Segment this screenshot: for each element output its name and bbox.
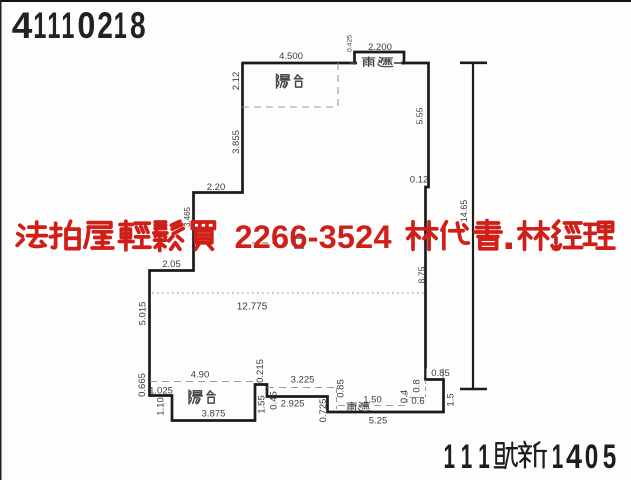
svg-text:1.5: 1.5	[446, 393, 457, 406]
svg-text:1: 1	[478, 438, 490, 476]
svg-text:2.05: 2.05	[162, 259, 181, 270]
svg-text:1.025: 1.025	[149, 386, 173, 397]
svg-text:0: 0	[585, 438, 599, 476]
svg-text:4: 4	[566, 438, 582, 476]
svg-text:8: 8	[130, 5, 146, 46]
svg-text:4.90: 4.90	[191, 370, 210, 381]
svg-text:5.55: 5.55	[415, 107, 425, 124]
svg-text:1.55: 1.55	[257, 395, 268, 414]
svg-text:0.85: 0.85	[431, 368, 450, 379]
svg-text:2266-3524: 2266-3524	[235, 219, 392, 255]
svg-text:1: 1	[47, 5, 60, 46]
svg-text:4.500: 4.500	[279, 51, 303, 62]
svg-text:1: 1	[61, 5, 74, 46]
svg-text:0.85: 0.85	[336, 379, 347, 398]
svg-text:0.4: 0.4	[399, 390, 410, 403]
svg-text:1: 1	[33, 5, 46, 46]
svg-text:2.20: 2.20	[207, 182, 226, 193]
svg-text:1: 1	[114, 5, 127, 46]
svg-text:0.12: 0.12	[410, 175, 429, 186]
svg-text:2: 2	[97, 5, 113, 46]
svg-text:2.12: 2.12	[231, 72, 242, 91]
svg-text:0.45: 0.45	[269, 391, 280, 410]
svg-text:0.215: 0.215	[255, 359, 266, 383]
svg-text:14.65: 14.65	[459, 200, 469, 223]
svg-text:1: 1	[461, 438, 473, 476]
svg-text:2.925: 2.925	[281, 399, 305, 410]
svg-text:1: 1	[552, 438, 564, 476]
svg-text:2.200: 2.200	[368, 42, 392, 53]
svg-text:1.10: 1.10	[156, 397, 167, 416]
svg-text:0: 0	[77, 5, 95, 46]
svg-text:3.225: 3.225	[291, 375, 315, 386]
svg-text:5.25: 5.25	[369, 416, 388, 427]
svg-text:0.8: 0.8	[412, 379, 423, 392]
svg-text:3.855: 3.855	[231, 130, 242, 154]
svg-text:1: 1	[444, 438, 456, 476]
svg-text:4: 4	[12, 5, 33, 46]
svg-text:8.75: 8.75	[417, 266, 427, 283]
svg-text:5: 5	[603, 438, 617, 476]
svg-text:0.6: 0.6	[411, 396, 424, 407]
svg-text:5.015: 5.015	[138, 302, 149, 326]
svg-text:3.875: 3.875	[202, 409, 226, 420]
svg-text:0.725: 0.725	[318, 399, 329, 423]
svg-text:12.775: 12.775	[237, 302, 268, 313]
svg-text:0.665: 0.665	[137, 373, 148, 397]
svg-text:0.425: 0.425	[347, 35, 354, 52]
svg-text:1.50: 1.50	[363, 395, 382, 406]
